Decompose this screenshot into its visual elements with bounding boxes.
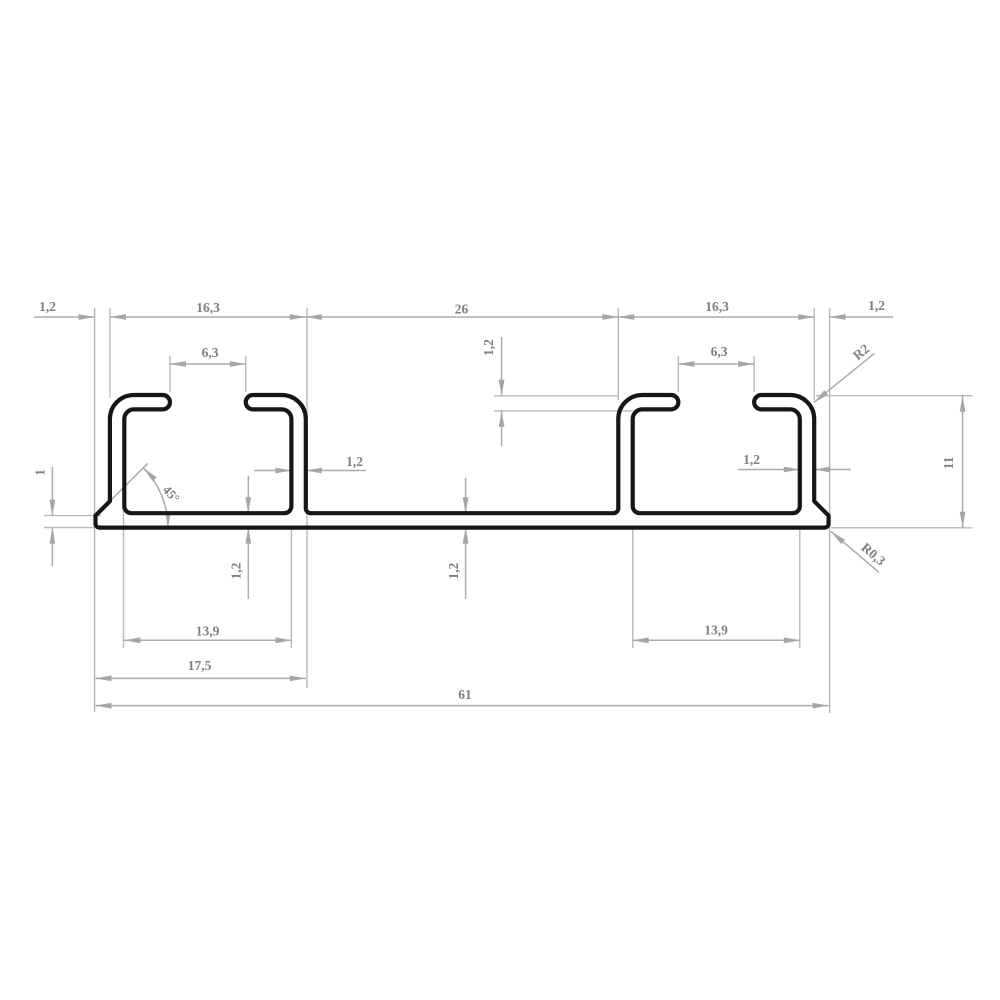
svg-text:R0,3: R0,3 <box>858 540 888 569</box>
svg-text:1: 1 <box>33 469 48 476</box>
svg-text:6,3: 6,3 <box>711 344 728 359</box>
svg-text:1,2: 1,2 <box>346 454 363 469</box>
svg-text:16,3: 16,3 <box>705 299 729 314</box>
svg-text:11: 11 <box>941 456 956 469</box>
svg-text:1,2: 1,2 <box>446 562 461 579</box>
svg-text:13,9: 13,9 <box>704 623 728 638</box>
svg-text:61: 61 <box>458 687 472 702</box>
svg-text:26: 26 <box>455 302 469 317</box>
svg-text:1,2: 1,2 <box>868 298 885 313</box>
svg-text:6,3: 6,3 <box>202 345 219 360</box>
svg-text:45°: 45° <box>160 482 183 506</box>
svg-text:1,2: 1,2 <box>39 299 56 314</box>
svg-text:1,2: 1,2 <box>743 452 760 467</box>
svg-text:1,2: 1,2 <box>229 562 244 579</box>
svg-text:13,9: 13,9 <box>196 624 220 639</box>
svg-text:R2: R2 <box>850 341 872 363</box>
svg-text:17,5: 17,5 <box>188 658 212 673</box>
svg-text:1,2: 1,2 <box>481 339 496 356</box>
svg-text:16,3: 16,3 <box>196 300 220 315</box>
